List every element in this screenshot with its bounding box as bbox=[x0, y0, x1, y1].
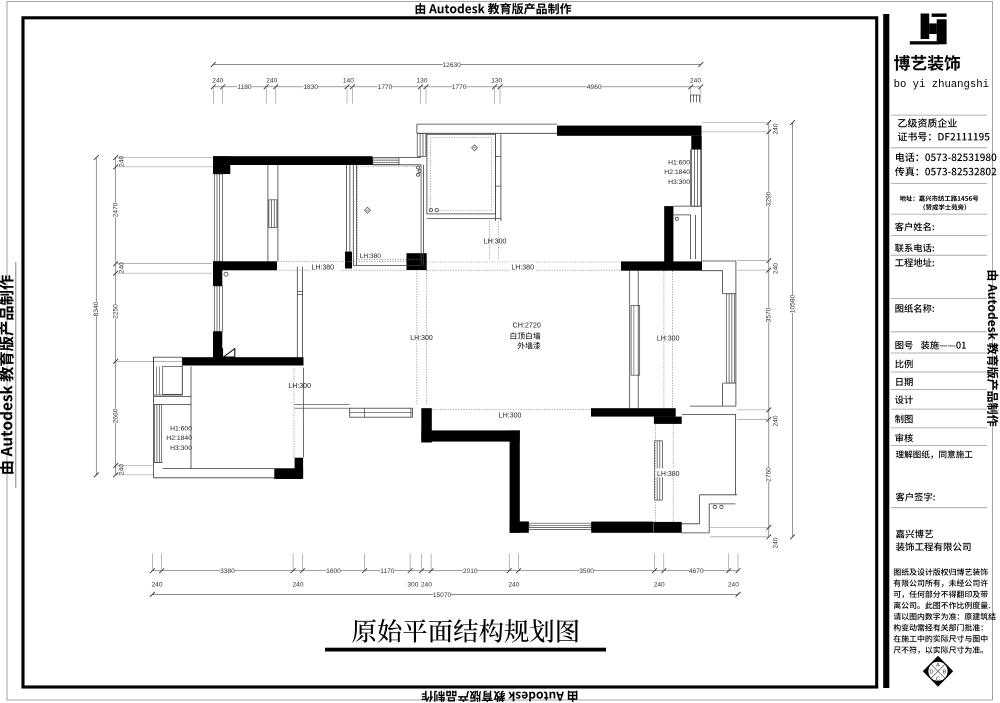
svg-text:CH:2720: CH:2720 bbox=[513, 321, 541, 330]
svg-text:LH:300: LH:300 bbox=[410, 335, 433, 342]
svg-text:LH:380: LH:380 bbox=[657, 471, 680, 478]
svg-text:B: B bbox=[943, 669, 947, 675]
svg-text:240: 240 bbox=[119, 155, 126, 166]
svg-text:H1:600: H1:600 bbox=[170, 426, 192, 433]
svg-text:H2:1840: H2:1840 bbox=[664, 169, 690, 176]
svg-text:240: 240 bbox=[212, 78, 223, 85]
svg-text:240: 240 bbox=[654, 582, 665, 589]
svg-text:H1:600: H1:600 bbox=[668, 160, 690, 167]
svg-text:240: 240 bbox=[728, 582, 739, 589]
svg-text:240: 240 bbox=[292, 582, 303, 589]
svg-text:H3:300: H3:300 bbox=[668, 179, 690, 186]
svg-text:3380: 3380 bbox=[220, 568, 235, 575]
svg-text:12630: 12630 bbox=[443, 62, 462, 69]
svg-text:2010: 2010 bbox=[463, 568, 478, 575]
svg-text:LH:380: LH:380 bbox=[511, 265, 534, 272]
svg-text:240: 240 bbox=[772, 263, 779, 274]
svg-text:LH:300: LH:300 bbox=[657, 336, 680, 343]
svg-text:2660: 2660 bbox=[112, 408, 119, 423]
svg-text:1770: 1770 bbox=[452, 84, 467, 91]
svg-text:H2:1840: H2:1840 bbox=[166, 435, 192, 442]
svg-text:2760: 2760 bbox=[766, 467, 773, 482]
svg-text:C: C bbox=[936, 676, 940, 682]
svg-text:1180: 1180 bbox=[237, 84, 252, 91]
svg-text:3290: 3290 bbox=[766, 191, 773, 206]
svg-text:H3:300: H3:300 bbox=[170, 445, 192, 452]
svg-text:240: 240 bbox=[119, 262, 126, 273]
svg-text:2470: 2470 bbox=[112, 202, 119, 217]
svg-text:240: 240 bbox=[119, 464, 126, 475]
svg-text:240: 240 bbox=[772, 537, 779, 548]
svg-text:bo yi zhuangshi: bo yi zhuangshi bbox=[894, 79, 989, 91]
svg-text:240: 240 bbox=[266, 78, 277, 85]
svg-text:240: 240 bbox=[772, 123, 779, 134]
svg-text:15070: 15070 bbox=[433, 592, 452, 599]
svg-text:1600: 1600 bbox=[326, 568, 341, 575]
svg-text:4670: 4670 bbox=[689, 568, 704, 575]
svg-text:4960: 4960 bbox=[587, 84, 602, 91]
svg-text:LH:300: LH:300 bbox=[499, 413, 522, 420]
svg-text:300: 300 bbox=[407, 582, 418, 589]
svg-text:240: 240 bbox=[151, 582, 162, 589]
svg-text:LH:300: LH:300 bbox=[288, 383, 311, 390]
svg-text:3500: 3500 bbox=[579, 568, 594, 575]
svg-text:240: 240 bbox=[772, 415, 779, 426]
svg-text:A: A bbox=[936, 663, 940, 669]
svg-text:1770: 1770 bbox=[378, 84, 393, 91]
svg-text:140: 140 bbox=[343, 78, 354, 85]
svg-text:1830: 1830 bbox=[303, 84, 318, 91]
svg-text:1170: 1170 bbox=[380, 568, 395, 575]
svg-text:240: 240 bbox=[690, 78, 701, 85]
svg-text:240: 240 bbox=[508, 582, 519, 589]
svg-text:LH:300: LH:300 bbox=[484, 239, 507, 246]
svg-text:130: 130 bbox=[491, 78, 502, 85]
svg-text:2250: 2250 bbox=[112, 304, 119, 319]
svg-text:130: 130 bbox=[416, 78, 427, 85]
svg-text:LH:380: LH:380 bbox=[360, 253, 382, 260]
svg-text:10580: 10580 bbox=[789, 295, 796, 314]
svg-text:240: 240 bbox=[421, 582, 432, 589]
svg-text:LH:380: LH:380 bbox=[312, 264, 335, 271]
svg-text:8340: 8340 bbox=[93, 301, 100, 316]
svg-text:3570: 3570 bbox=[766, 307, 773, 322]
svg-text:D: D bbox=[930, 669, 934, 675]
